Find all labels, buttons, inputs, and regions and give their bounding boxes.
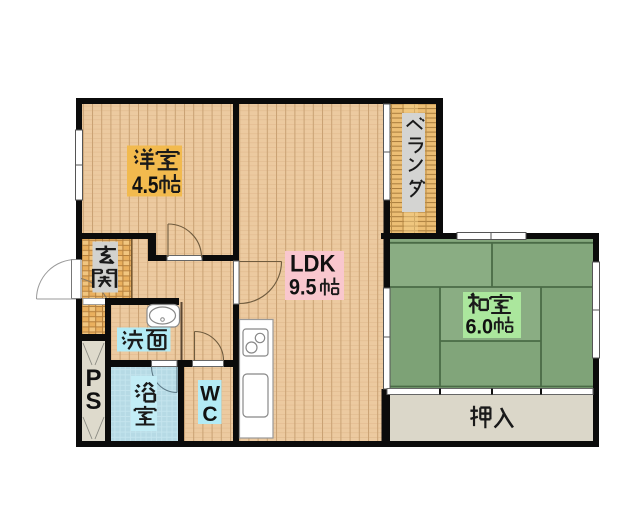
svg-text:S: S	[85, 388, 101, 415]
svg-text:4.5: 4.5	[132, 172, 159, 199]
svg-text:LDK: LDK	[290, 251, 336, 278]
svg-text:9.5: 9.5	[289, 275, 317, 300]
svg-text:C: C	[202, 403, 217, 426]
svg-text:6.0: 6.0	[466, 315, 494, 339]
